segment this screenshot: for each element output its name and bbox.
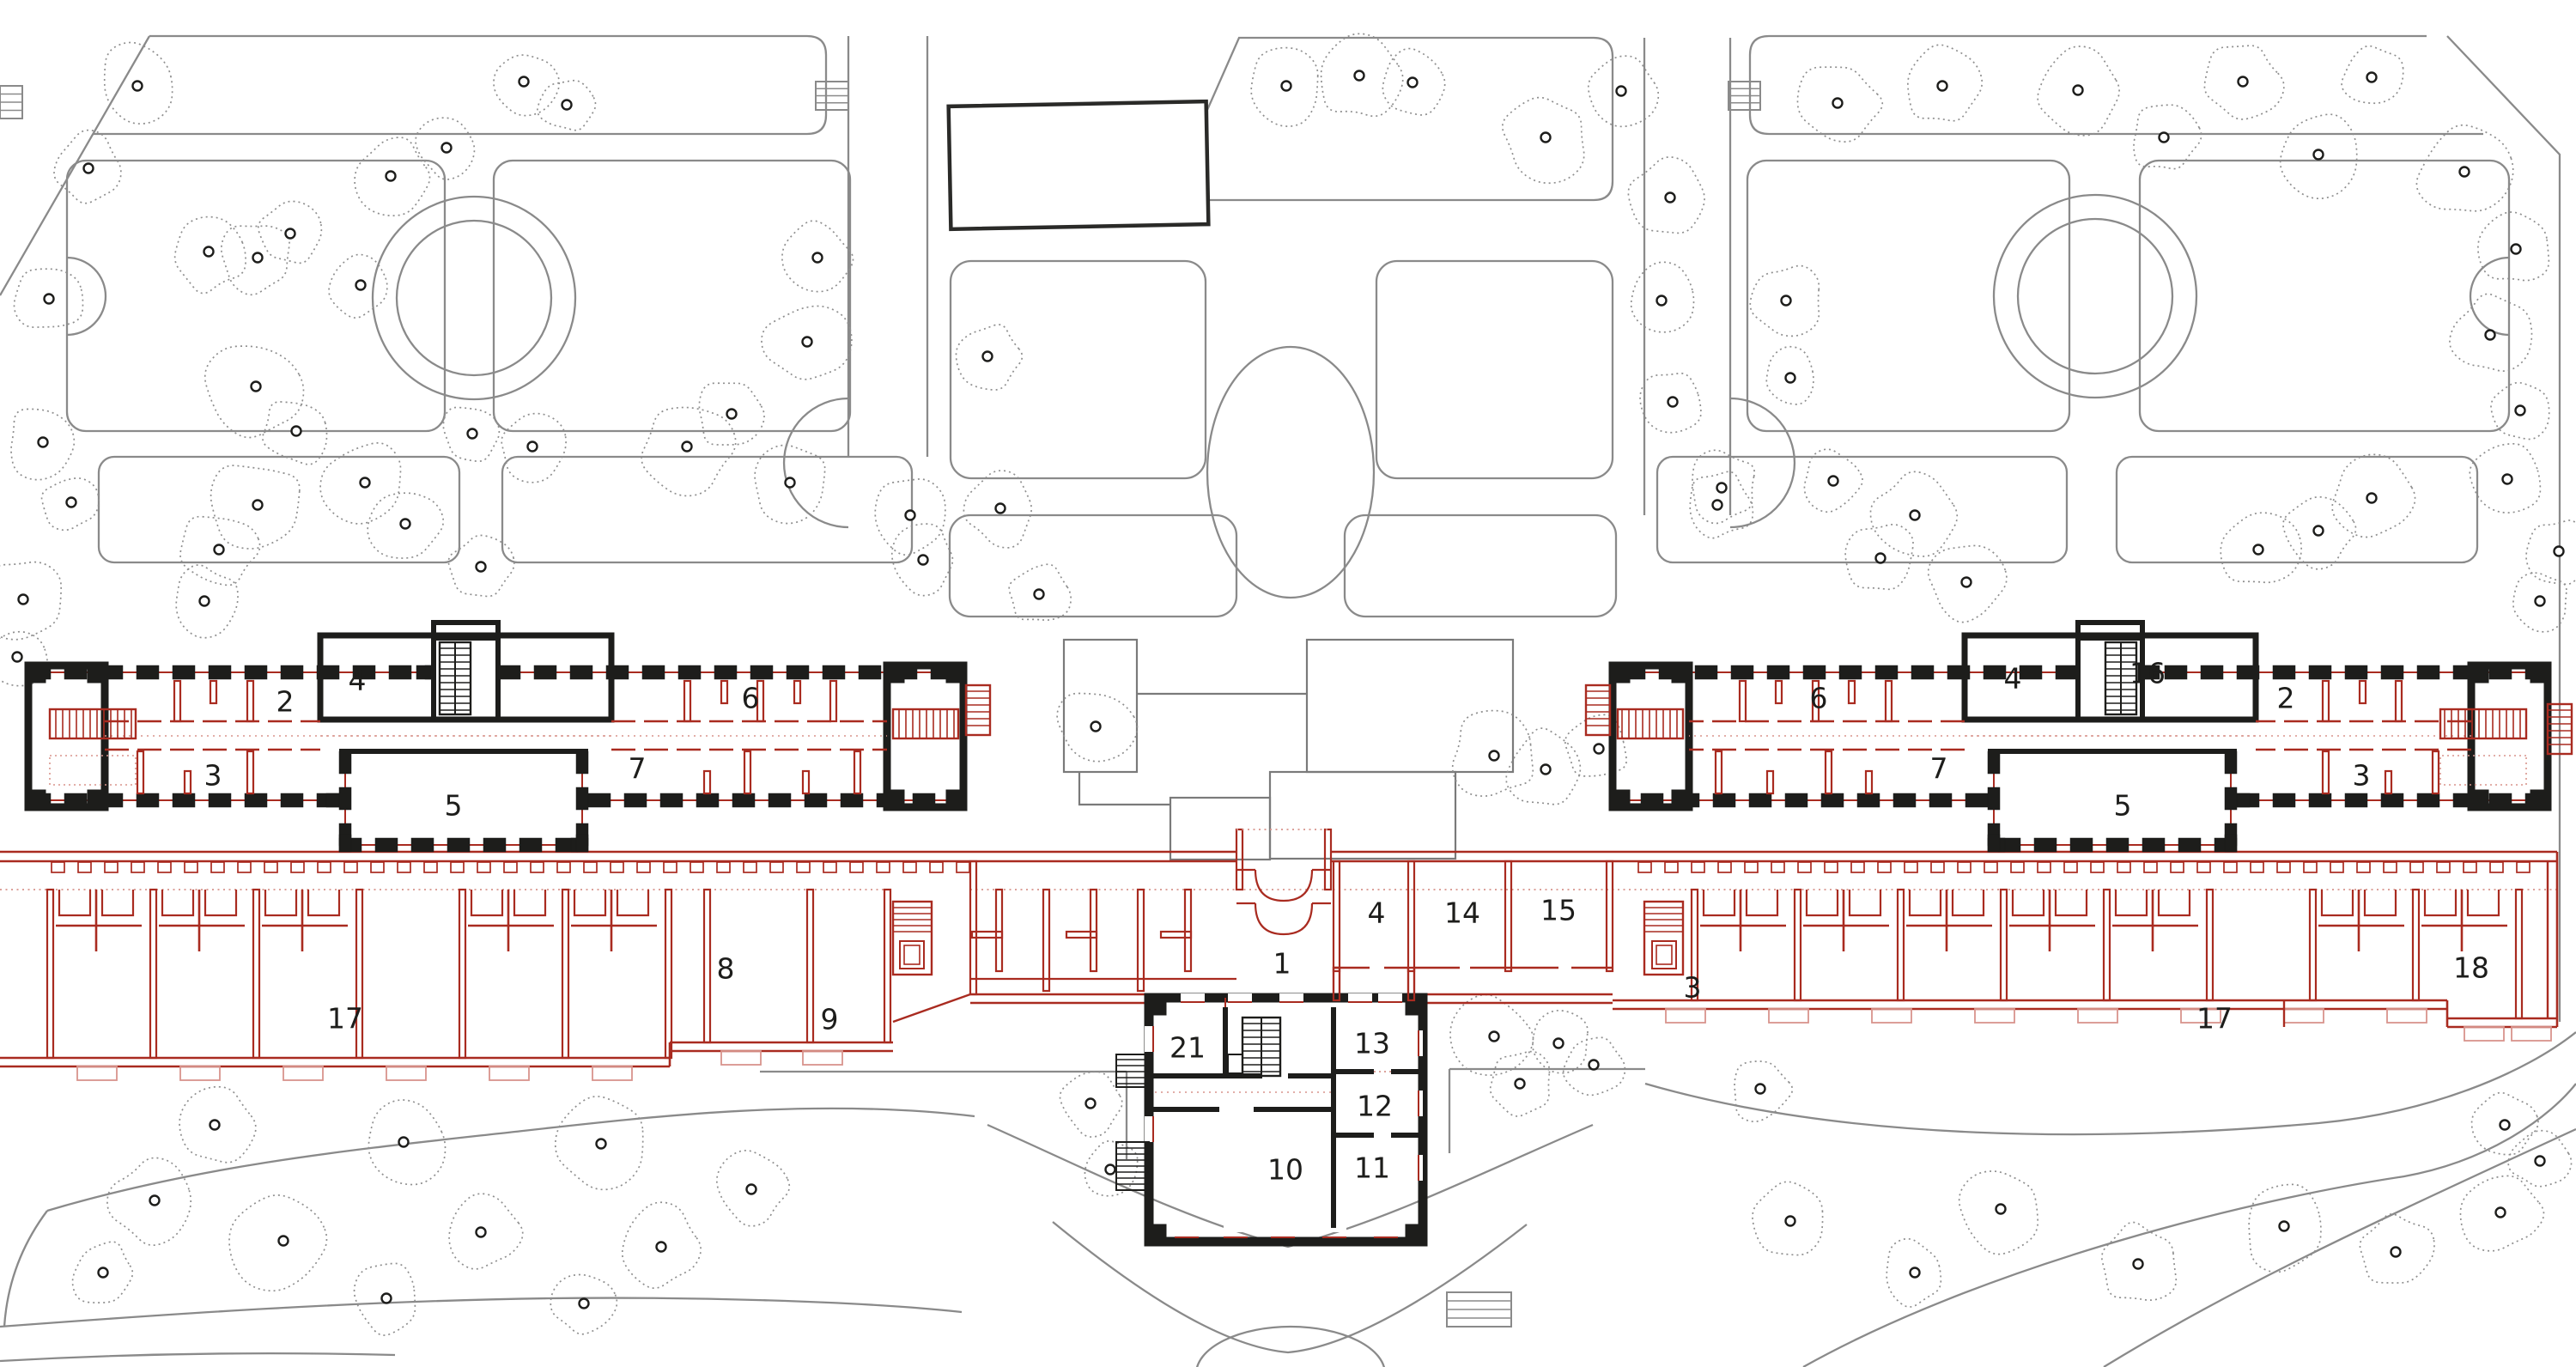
room-label: 11: [1354, 1151, 1390, 1185]
tree: [1908, 45, 1982, 120]
room-label: 8: [717, 952, 735, 986]
tree: [2526, 520, 2576, 584]
tree: [963, 471, 1031, 548]
tree: [2283, 497, 2356, 569]
tree: [1251, 48, 1318, 127]
tree: [1753, 1182, 1823, 1255]
room-label: 10: [1267, 1153, 1303, 1187]
tree: [1491, 1052, 1550, 1116]
room-label: 3: [204, 759, 222, 793]
ward-wing-right: [1613, 623, 2548, 852]
tree: [54, 131, 121, 204]
tree: [1589, 56, 1659, 126]
tree: [2478, 212, 2549, 281]
room-label: 21: [1170, 1031, 1206, 1065]
tree: [1870, 471, 1957, 556]
tree: [1057, 693, 1137, 761]
tree: [2450, 294, 2532, 371]
room-label: 5: [2114, 789, 2132, 823]
room-label: 6: [742, 682, 760, 715]
tree: [1382, 49, 1444, 115]
tree: [1929, 545, 2007, 622]
tree: [416, 118, 474, 179]
tree: [175, 217, 246, 294]
tree: [717, 1151, 789, 1226]
tree: [258, 201, 322, 263]
tree: [2460, 1176, 2543, 1250]
ward-wing-buildings: [28, 623, 2572, 852]
tree: [550, 1274, 617, 1334]
tree: [699, 383, 764, 445]
tree: [73, 1242, 133, 1303]
tree: [1060, 1072, 1121, 1137]
tree: [2513, 573, 2567, 632]
room-label: 2: [2277, 682, 2295, 715]
tree: [2332, 454, 2415, 537]
tree: [956, 325, 1022, 390]
tree: [1766, 347, 1814, 404]
tree: [107, 1157, 191, 1245]
tree: [205, 346, 304, 437]
tree: [1503, 98, 1584, 184]
tree: [1804, 449, 1862, 512]
tree: [448, 535, 513, 596]
tree: [1640, 374, 1701, 433]
tree: [1845, 525, 1913, 589]
tree: [368, 1100, 445, 1185]
room-label: 4: [349, 664, 367, 697]
tree: [892, 524, 953, 595]
tree: [1735, 1061, 1792, 1121]
tree: [449, 1194, 523, 1269]
room-label: 3: [1684, 971, 1702, 1005]
tree: [2281, 114, 2357, 198]
tree: [2470, 444, 2540, 513]
tree: [263, 402, 327, 465]
room-label: 9: [821, 1003, 839, 1036]
room-label: 13: [1354, 1027, 1390, 1060]
room-label: 1: [1273, 947, 1291, 981]
tree: [0, 562, 61, 640]
tree: [1692, 450, 1754, 523]
tree: [179, 1087, 256, 1163]
tree: [355, 137, 429, 216]
tree: [176, 565, 238, 638]
tree: [1564, 1037, 1625, 1095]
tree: [556, 1097, 643, 1189]
tree: [1533, 1011, 1588, 1073]
room-label: 17: [2196, 1002, 2233, 1036]
tree: [229, 1195, 326, 1291]
tree: [1506, 728, 1580, 805]
tree: [2221, 513, 2301, 582]
room-label: 14: [1444, 896, 1480, 930]
tree: [875, 479, 945, 555]
tree: [1009, 564, 1071, 620]
trees: [0, 33, 2576, 1335]
tree: [2038, 46, 2119, 136]
tree: [2204, 46, 2283, 119]
tree: [1886, 1239, 1941, 1307]
tree: [180, 517, 260, 586]
room-label: 6: [1810, 682, 1828, 715]
room-label: 17: [327, 1002, 363, 1036]
room-label: 7: [629, 752, 647, 786]
site-plan-canvas: 246375641627351789141415317182113121011: [0, 0, 2576, 1367]
ward-wing-left: [28, 623, 963, 852]
tree: [368, 493, 443, 558]
tree: [494, 55, 559, 116]
tree: [2472, 1093, 2538, 1155]
room-label: 4: [2004, 662, 2022, 696]
tree: [1321, 33, 1403, 116]
tree: [2491, 383, 2549, 440]
tree: [222, 226, 289, 295]
tree: [1628, 157, 1704, 234]
tree: [623, 1202, 701, 1288]
room-label: 18: [2453, 951, 2489, 985]
tree: [1453, 711, 1534, 797]
room-label: 4: [1368, 896, 1386, 930]
room-label: 15: [1540, 894, 1577, 927]
room-label: 16: [2129, 657, 2166, 690]
room-label: 12: [1357, 1090, 1393, 1123]
tree: [1450, 994, 1534, 1075]
tree: [762, 306, 852, 379]
tree: [641, 407, 736, 495]
tree: [1959, 1171, 2038, 1255]
tree: [42, 478, 100, 530]
tree: [1797, 67, 1882, 142]
tree: [2416, 125, 2512, 211]
tree: [211, 465, 300, 549]
gray-building-outline: [949, 101, 1513, 860]
room-label: 2: [276, 685, 295, 719]
tree: [1631, 262, 1694, 332]
tree: [355, 1263, 416, 1335]
tree: [11, 409, 74, 479]
tree: [2342, 46, 2403, 104]
tree: [443, 407, 499, 461]
tree: [782, 221, 854, 291]
room-label: 3: [2353, 759, 2371, 793]
tree: [1690, 471, 1753, 538]
tree: [2134, 105, 2202, 168]
site-plan-drawing: 246375641627351789141415317182113121011: [0, 0, 2576, 1367]
tree: [320, 443, 400, 524]
room-label: 7: [1930, 752, 1948, 786]
tree: [501, 414, 566, 483]
room-label: 5: [445, 789, 463, 823]
tree: [14, 269, 82, 327]
tree: [1750, 266, 1819, 337]
tree: [538, 81, 596, 131]
tree: [1084, 1141, 1137, 1196]
